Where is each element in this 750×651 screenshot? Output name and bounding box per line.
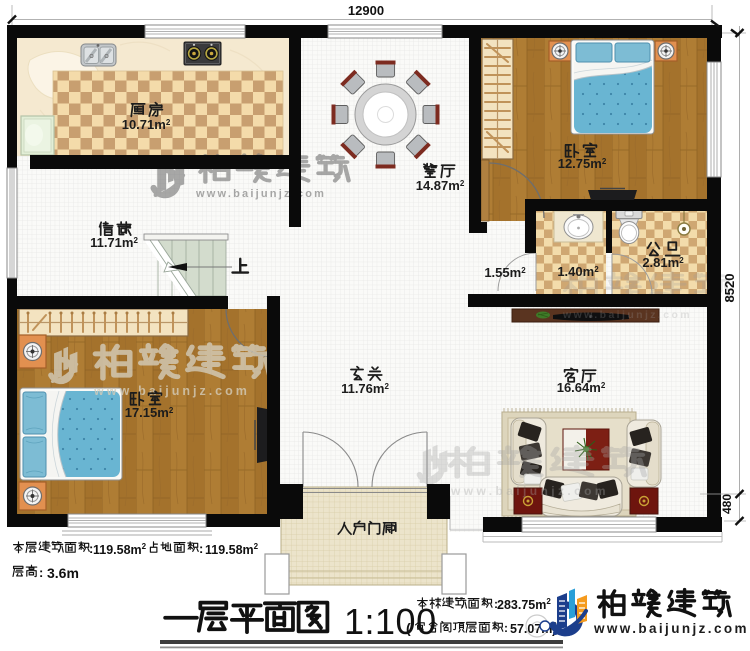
svg-text:3.6m: 3.6m [47, 565, 79, 581]
svg-text:1.55m2: 1.55m2 [484, 265, 526, 280]
svg-text:283.75m2: 283.75m2 [497, 597, 551, 612]
svg-text:1:100: 1:100 [344, 601, 437, 642]
svg-text:8520: 8520 [722, 274, 737, 303]
svg-text:16.64m2: 16.64m2 [557, 380, 606, 395]
svg-text::: : [504, 621, 508, 635]
svg-text:www.baijunjz.com: www.baijunjz.com [562, 309, 692, 321]
svg-text:17.15m2: 17.15m2 [125, 405, 174, 420]
svg-text:10.71m2: 10.71m2 [122, 117, 171, 132]
svg-text::: : [199, 541, 203, 556]
svg-text:11.71m2: 11.71m2 [90, 235, 138, 250]
svg-text:www.baijunjz.com: www.baijunjz.com [93, 384, 250, 398]
svg-text:2.81m2: 2.81m2 [642, 255, 684, 270]
svg-text::: : [39, 565, 43, 580]
svg-text:www.baijunjz.com: www.baijunjz.com [593, 621, 749, 636]
svg-text:www.baijunjz.com: www.baijunjz.com [195, 188, 326, 200]
svg-text:480: 480 [720, 494, 734, 514]
svg-text:www.baijunjz.com: www.baijunjz.com [450, 484, 609, 498]
svg-text:119.58m2: 119.58m2 [205, 542, 259, 557]
svg-text:11.76m2: 11.76m2 [341, 381, 389, 396]
svg-text:14.87m2: 14.87m2 [416, 178, 465, 193]
svg-text:1.40m2: 1.40m2 [557, 264, 599, 279]
svg-text:12.75m2: 12.75m2 [558, 156, 607, 171]
svg-text:12900: 12900 [348, 3, 384, 18]
svg-text:119.58m2: 119.58m2 [93, 542, 147, 557]
